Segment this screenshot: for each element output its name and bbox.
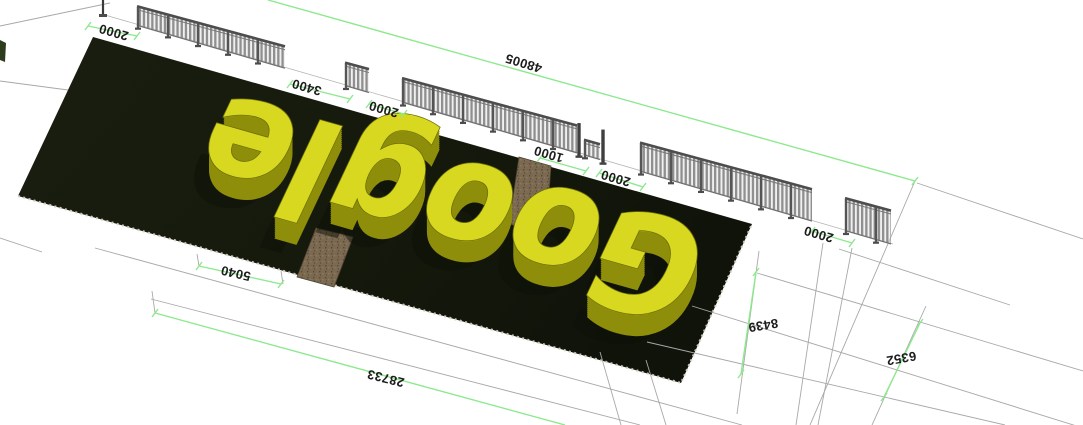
fence-post-foot xyxy=(99,14,107,17)
fence-segment xyxy=(582,140,600,160)
sketchup-3d-viewport[interactable]: GoogleGoogleGoogleGoogleGoogleGoogleGoog… xyxy=(0,0,1083,425)
fence-segment xyxy=(843,198,891,244)
gate-post-foot xyxy=(600,162,607,164)
site-plan-3d-view: GoogleGoogleGoogleGoogleGoogleGoogleGoog… xyxy=(0,0,1083,425)
gate-post-foot xyxy=(576,155,583,157)
shrub xyxy=(0,40,6,62)
fence-segment xyxy=(343,63,369,93)
